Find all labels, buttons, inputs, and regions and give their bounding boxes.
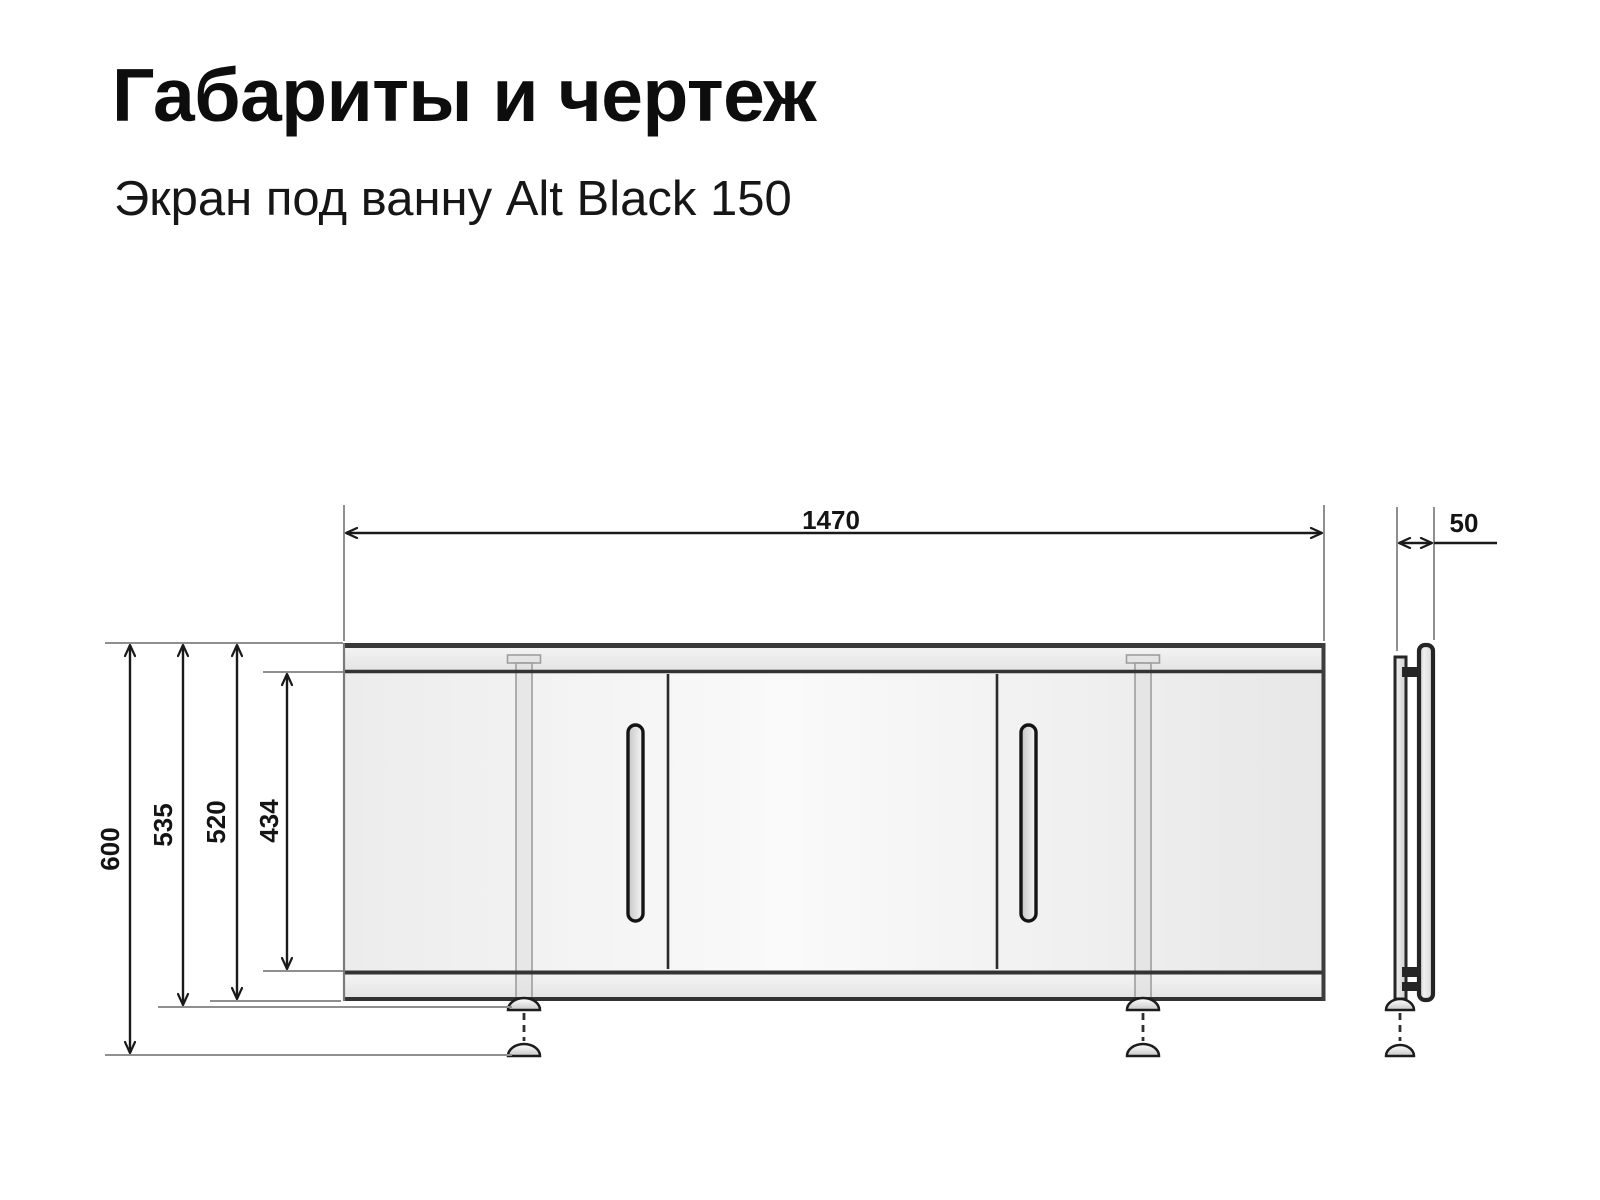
front-left-foot bbox=[508, 998, 540, 1056]
side-panel-profile bbox=[1419, 645, 1433, 1000]
dim-label-width: 1470 bbox=[802, 505, 860, 535]
side-view bbox=[1386, 645, 1433, 1056]
technical-drawing: 1470 50 600 535 520 434 bbox=[0, 0, 1600, 1200]
foot-dome-upper bbox=[1386, 999, 1414, 1010]
dim-label-depth: 50 bbox=[1450, 508, 1479, 538]
side-leg-profile bbox=[1395, 657, 1406, 999]
front-bottom-rail bbox=[343, 971, 1325, 1001]
front-right-foot bbox=[1127, 998, 1159, 1056]
dim-label-inner-height: 434 bbox=[254, 799, 284, 843]
front-panel-body bbox=[343, 673, 1325, 971]
side-bracket-bottom-2 bbox=[1402, 982, 1421, 991]
handle-slot-left bbox=[628, 725, 643, 921]
leg-column bbox=[1135, 663, 1151, 999]
side-bracket-top bbox=[1402, 667, 1421, 677]
handle-slot-right bbox=[1021, 725, 1036, 921]
side-foot bbox=[1386, 999, 1414, 1056]
dim-label-total-height: 600 bbox=[95, 827, 125, 870]
dim-label-panel-height: 520 bbox=[201, 800, 231, 843]
foot-dome-lower bbox=[1386, 1045, 1414, 1056]
side-bracket-bottom-1 bbox=[1402, 967, 1421, 977]
leg-cap bbox=[1127, 655, 1160, 663]
leg-column bbox=[516, 663, 532, 999]
front-view bbox=[343, 643, 1325, 1056]
foot-dome-lower bbox=[508, 1044, 540, 1056]
dim-label-height-feet: 535 bbox=[148, 803, 178, 846]
foot-dome-lower bbox=[1127, 1044, 1159, 1056]
leg-cap bbox=[508, 655, 541, 663]
